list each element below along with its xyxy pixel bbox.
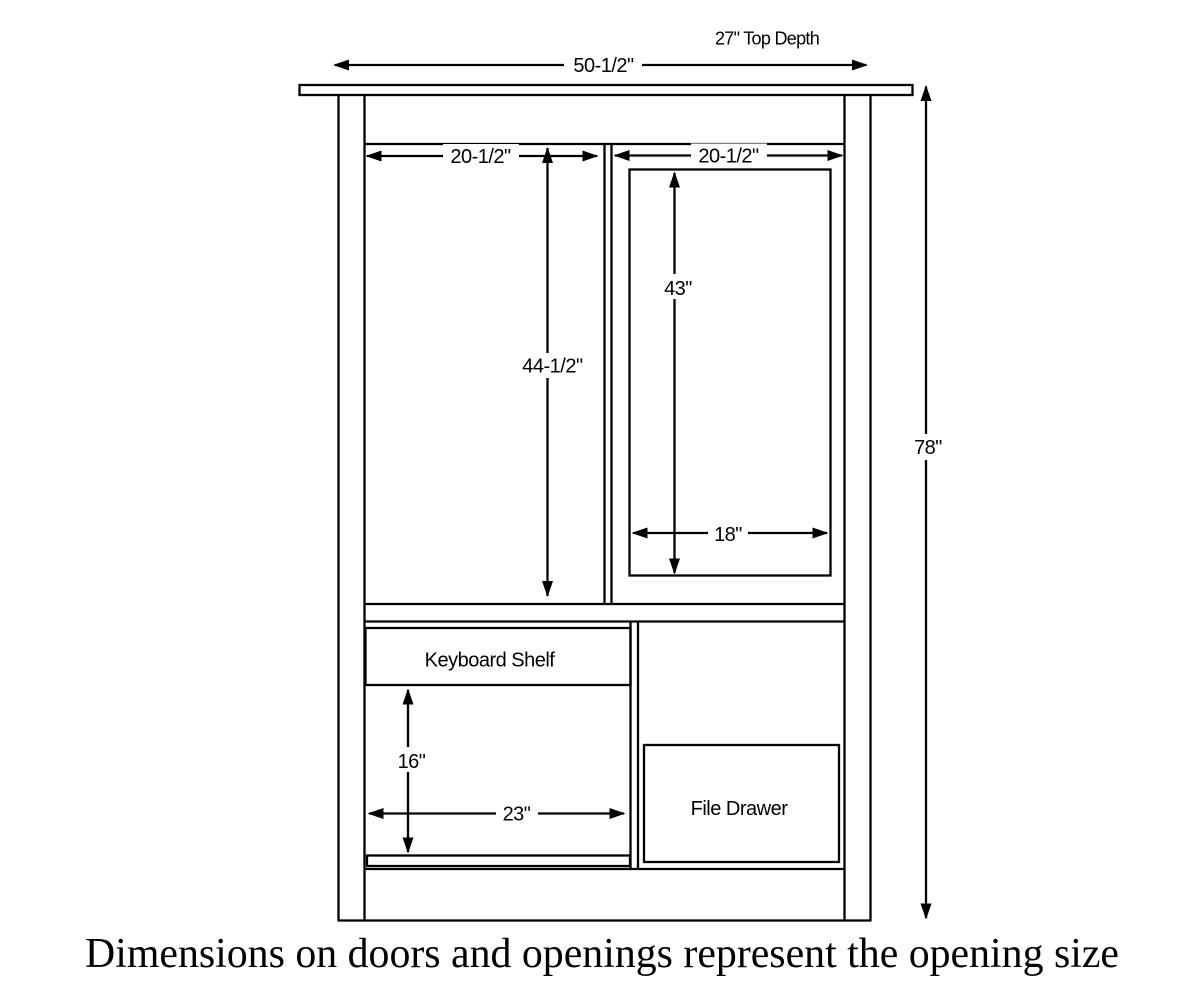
svg-text:File Drawer: File Drawer [691,798,789,820]
svg-text:27" Top Depth: 27" Top Depth [715,29,819,49]
svg-text:18": 18" [714,524,742,546]
svg-text:Keyboard Shelf: Keyboard Shelf [425,650,556,672]
svg-text:20-1/2": 20-1/2" [450,146,511,168]
svg-text:20-1/2": 20-1/2" [698,146,759,168]
svg-text:23": 23" [503,804,531,826]
svg-text:43": 43" [664,278,692,300]
svg-text:44-1/2": 44-1/2" [522,356,583,378]
svg-text:50-1/2": 50-1/2" [573,55,634,77]
svg-text:Dimensions on doors and openin: Dimensions on doors and openings represe… [85,931,1119,977]
svg-text:16": 16" [398,751,426,773]
svg-text:78": 78" [914,437,942,459]
